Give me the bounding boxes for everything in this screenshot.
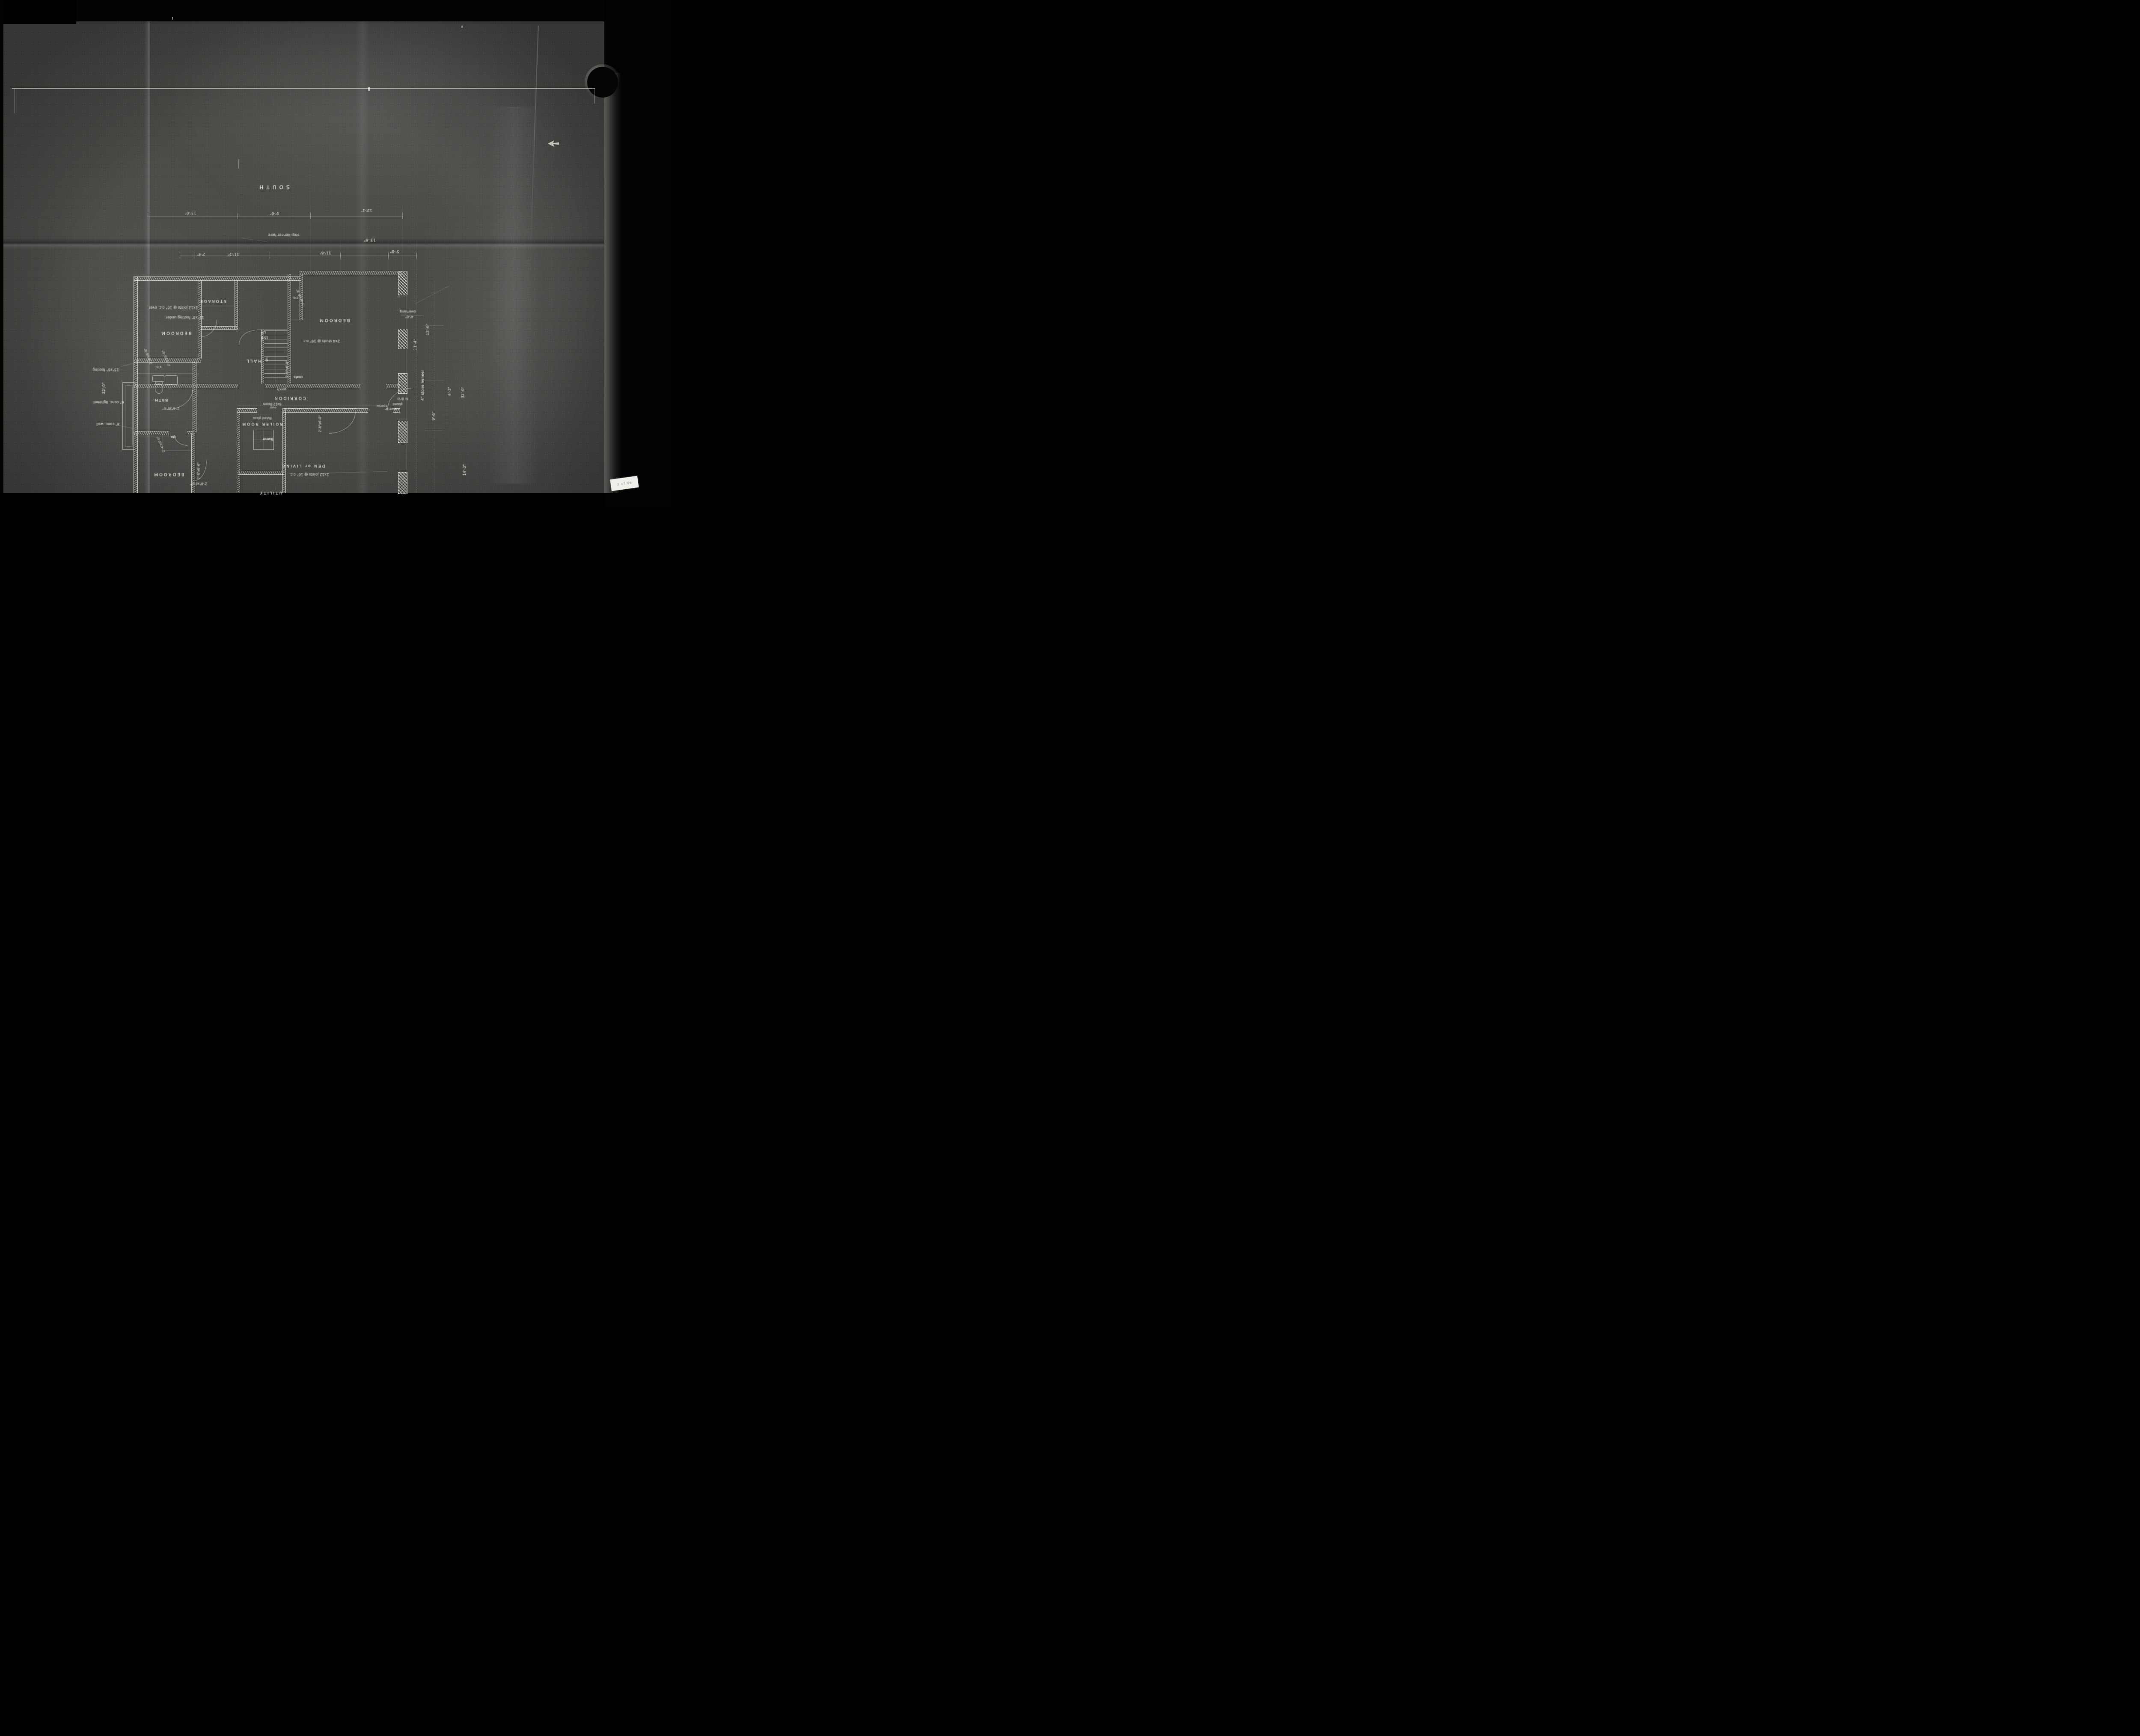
speck: [172, 17, 173, 20]
border-top: [0, 0, 671, 21]
stone-pier: [398, 472, 407, 494]
wall-corridor-north-a: [134, 384, 238, 388]
dim-13-2: 13'-2": [360, 208, 372, 212]
room-coats: coats: [294, 375, 303, 379]
stone-pier: [398, 421, 407, 443]
stair-down-label: dn: [265, 357, 269, 362]
dim-32-0-right: 32'-0": [461, 386, 465, 398]
room-den: DEN or LIVING: [281, 464, 325, 468]
dim-tick: [180, 253, 180, 259]
note-joists-nw: 2x12 joists @ 16" o.c. over: [149, 305, 198, 309]
room-clo-sw: clo.: [170, 435, 176, 439]
room-bedroom-e: BEDROOM: [318, 318, 350, 323]
door-size-den-v: 2'-8"x6'-6": [197, 462, 201, 479]
dim-line-row1: [148, 216, 402, 217]
dim-line-row2: [180, 256, 417, 256]
stone-pier: [398, 271, 407, 295]
note-overhang: overhang: [400, 310, 416, 314]
room-boiler: BOILER ROOM: [241, 422, 283, 426]
right-dim-tick-3: [424, 430, 444, 431]
room-storage: STORAGE: [199, 299, 226, 303]
right-dim-line-1: [434, 277, 434, 491]
ext-line: [238, 205, 238, 278]
dim-tick: [270, 253, 270, 259]
wall-bedroomnw-storage: [198, 280, 202, 359]
ext-line: [388, 240, 389, 273]
room-corridor: CORRIDOR: [273, 396, 306, 401]
door-special-size: 2'-8"x6'-8": [384, 407, 400, 410]
blueprint-sheet: [3, 21, 604, 493]
dim-5-8: 5'-8": [390, 249, 399, 253]
door-size-bath: 2'-6"x6'-6": [162, 407, 179, 410]
leader-porch: [288, 390, 298, 390]
wall-south-east: [300, 271, 402, 275]
stair-up-arrow: [257, 329, 287, 330]
clo-bath-divider: [134, 373, 193, 374]
border-top-left-block: [0, 0, 76, 24]
tub-fixture: [165, 375, 178, 385]
door-size-hall: 2'-8"x6'-8": [285, 360, 289, 378]
wall-south-west: [134, 276, 300, 281]
note-conc-wall: 8" conc. wall: [96, 422, 119, 426]
sink-fixture: [152, 375, 164, 382]
room-clo-top: clo.: [292, 296, 298, 300]
wall-bath-east: [193, 362, 196, 432]
stair-risers-label: 15 R: [261, 336, 268, 340]
sticker-text: 2 of de: [617, 481, 632, 487]
right-dim-tick-2: [424, 380, 444, 380]
room-utility: UTILITY: [259, 490, 282, 495]
dim-11-4-right: 11'-4": [413, 339, 418, 350]
wall-corridor-north-c: [386, 384, 400, 388]
stair-rail: [276, 330, 276, 382]
clo-sw-south: [163, 450, 191, 451]
sheet-border-line-left: [14, 88, 15, 114]
dim-14-3-right: 14'-3": [463, 464, 467, 476]
page-edge-right: [604, 73, 621, 493]
dim-4-3-right: 4'-3": [448, 386, 452, 395]
room-bath: BATH.: [152, 398, 168, 402]
wall-boiler-east: [282, 408, 286, 493]
toilet-fixture: [155, 383, 163, 394]
dim-9-6-top: 9'-6": [270, 211, 279, 215]
note-special-2: glazed: [392, 402, 402, 406]
note-porch: porch: [277, 388, 286, 392]
beam-dash-line: [238, 405, 400, 405]
note-footing-left: 15"x6" footing: [92, 367, 119, 372]
sheet-border-line-right: [594, 88, 594, 104]
sheet-border-line-top: [12, 88, 595, 89]
wall-bath-bedroomsw: [134, 431, 169, 435]
border-right: [604, 0, 671, 506]
room-bedroom-nw: BEDROOM: [160, 331, 191, 336]
ext-line: [416, 240, 417, 275]
note-studs-e: 2x4 studs @ 16" o.c.: [302, 339, 340, 343]
leader-joists-nw: [188, 305, 238, 305]
note-lightwell: 6" conc. lightwell: [92, 400, 124, 404]
burner-label: Burner: [262, 437, 273, 441]
dim-2-4: 2'-4": [197, 253, 205, 256]
compass-south-label: SOUTH: [256, 184, 289, 190]
dim-32-0-left: 32'-0": [102, 382, 106, 394]
note-beam-over: over: [270, 406, 276, 409]
clo-top-south: [290, 319, 300, 319]
door-size-bedroom-e: 2'-8"x6'-8": [318, 415, 322, 432]
door-size-den-h: 2'-8"x6'-6": [190, 482, 207, 486]
room-hall: HALL: [245, 359, 262, 363]
dim-13-0: 13'-0": [184, 211, 196, 215]
note-special-3: fir th'ld: [397, 397, 408, 400]
ext-line: [310, 205, 311, 273]
note-footing-under: 12"x8" footing under: [166, 315, 204, 319]
wall-boiler-utility: [238, 471, 284, 475]
stair-up-label: UP: [262, 330, 266, 334]
wall-bath-bedroomsw-b: [187, 431, 194, 435]
ext-line: [340, 240, 341, 273]
room-clo-bath: clo.: [155, 366, 161, 369]
wall-boiler-west: [237, 408, 240, 493]
border-left: [0, 0, 3, 506]
light-well-inner: [125, 385, 133, 447]
right-dim-tick-1: [424, 325, 444, 326]
ext-line: [402, 205, 403, 272]
toilet-tank: [155, 382, 163, 385]
ext-line: [148, 205, 148, 278]
dim-13-6-top: 13'-6": [364, 238, 375, 242]
room-bedroom-sw: BEDROOM: [153, 472, 184, 477]
border-bottom: [0, 493, 671, 506]
note-stone-veneer: 4" stone Veneer: [421, 370, 425, 401]
note-stop-veneer: stop Veneer here: [268, 232, 300, 237]
corner-sticker: 2 of de: [610, 476, 639, 491]
blueprint-photo: 2 of de SOUTH 13'-0" 9'-6" 13'-2" stop V…: [0, 0, 671, 506]
dim-overhang-line: [401, 315, 424, 315]
stone-pier: [398, 329, 407, 349]
note-fluted-glass: fluted glass: [253, 416, 271, 420]
dim-tick: [195, 253, 195, 259]
overhang-dash-line: [416, 274, 416, 492]
dim-11-6: 11'-6": [319, 250, 331, 255]
